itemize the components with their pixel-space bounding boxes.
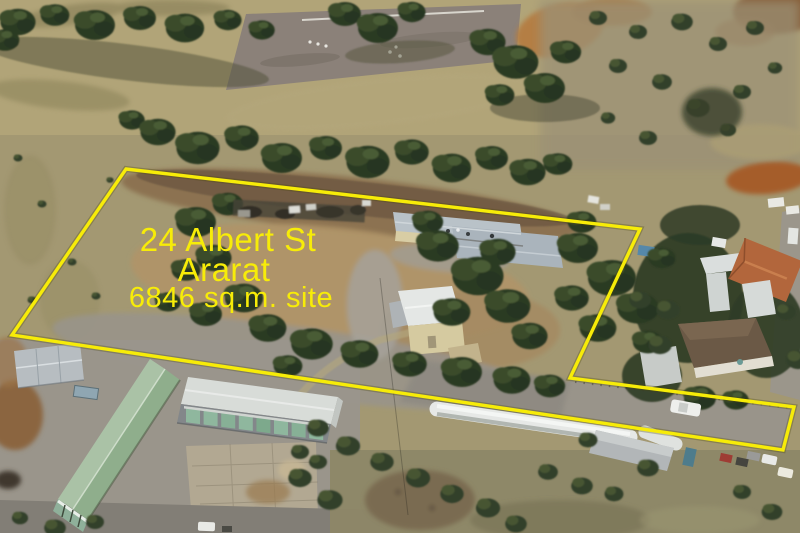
aerial-photo: 24 Albert St Ararat 6846 sq.m. site: [0, 0, 800, 533]
site-label-area: 6846 sq.m. site: [129, 282, 333, 314]
gray-shed: [14, 343, 84, 388]
aerial-photo-listing: 24 Albert St Ararat 6846 sq.m. site: [0, 0, 800, 533]
